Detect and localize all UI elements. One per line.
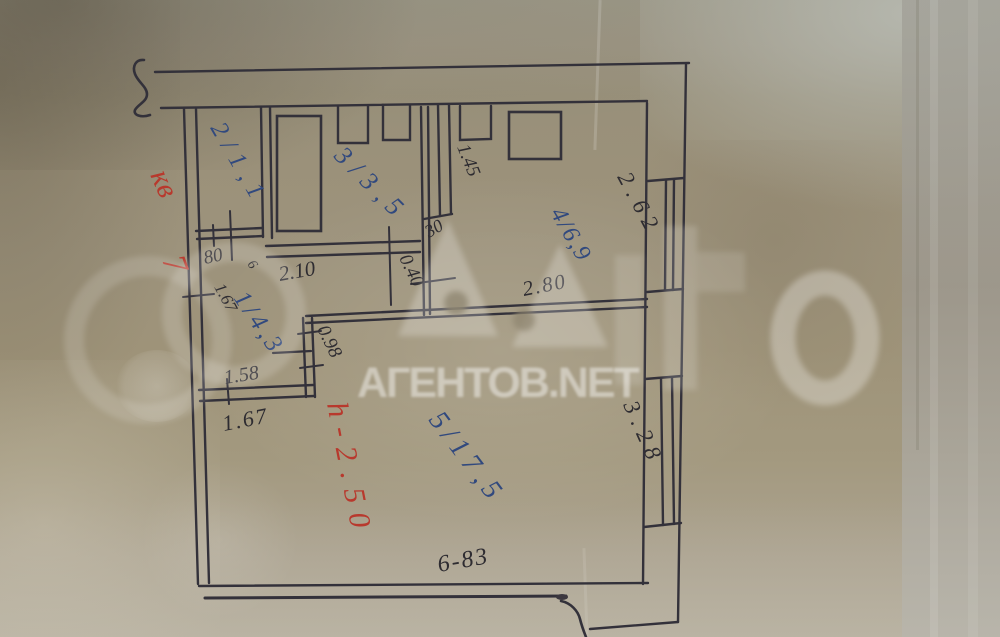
svg-text:2/1,1: 2/1,1 — [205, 118, 274, 210]
svg-text:h-2.50: h-2.50 — [320, 399, 379, 540]
svg-text:АГЕНТОВ.NET: АГЕНТОВ.NET — [357, 359, 640, 407]
svg-text:кв: кв — [144, 164, 185, 202]
svg-text:6-83: 6-83 — [436, 543, 492, 578]
svg-text:5/17,5: 5/17,5 — [422, 406, 511, 510]
svg-text:3/3,5: 3/3,5 — [328, 140, 415, 227]
svg-text:4/6,9: 4/6,9 — [545, 203, 597, 267]
svg-text:2.62: 2.62 — [613, 168, 667, 240]
svg-text:1.67: 1.67 — [220, 402, 270, 435]
svg-text:1.45: 1.45 — [452, 141, 484, 180]
svg-text:0.98: 0.98 — [313, 322, 347, 362]
